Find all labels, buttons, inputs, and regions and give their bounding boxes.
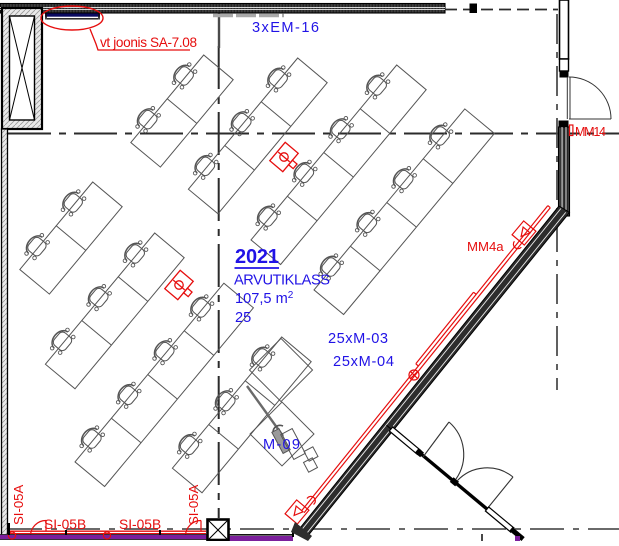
svg-text:25: 25 [235, 310, 251, 326]
svg-text:107,5 m2: 107,5 m2 [235, 290, 294, 307]
svg-text:25xM-04: 25xM-04 [333, 354, 394, 370]
svg-text:SI-05A: SI-05A [186, 484, 201, 525]
svg-text:2021: 2021 [235, 246, 279, 268]
svg-text:25xM-03: 25xM-03 [328, 331, 388, 347]
svg-text:MM14: MM14 [575, 125, 606, 139]
svg-text:SI-05A: SI-05A [11, 484, 26, 525]
svg-text:vt joonis SA-7.08: vt joonis SA-7.08 [100, 35, 197, 50]
svg-text:3xEM-16: 3xEM-16 [252, 20, 319, 36]
svg-text:MM4a: MM4a [467, 239, 504, 254]
svg-text:ARVUTIKLASS: ARVUTIKLASS [234, 273, 330, 289]
svg-text:SI-05B: SI-05B [44, 517, 86, 532]
svg-text:SI-05B: SI-05B [119, 517, 161, 532]
